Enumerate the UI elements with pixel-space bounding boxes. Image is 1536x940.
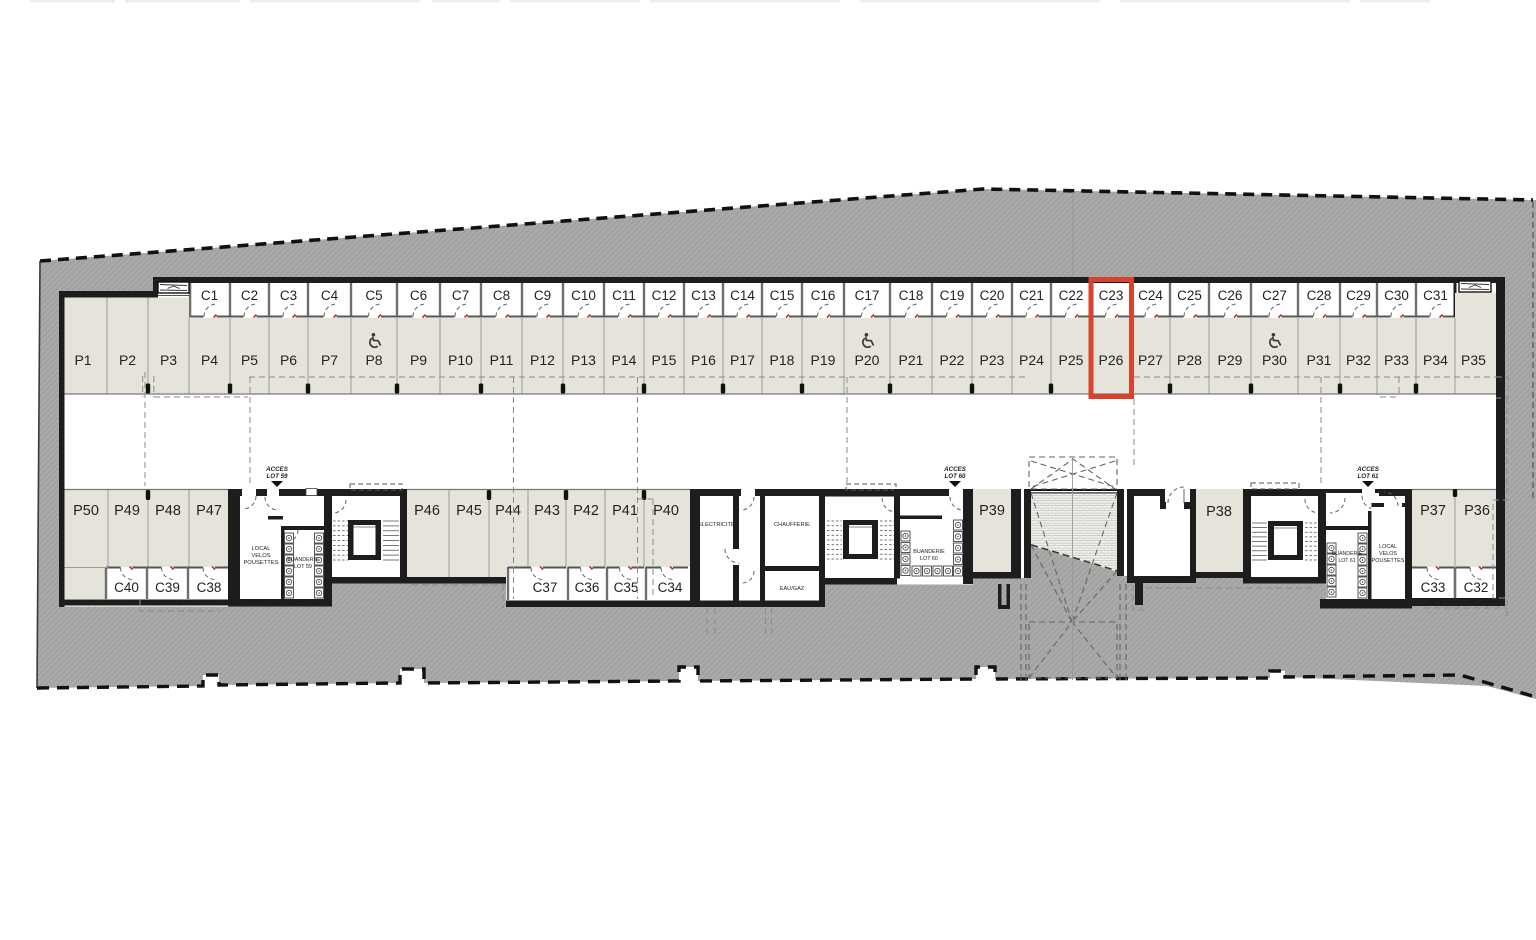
svg-text:C21: C21	[1019, 288, 1044, 303]
svg-text:LOT 59: LOT 59	[294, 564, 312, 570]
svg-text:C12: C12	[652, 288, 677, 303]
svg-text:C26: C26	[1218, 288, 1243, 303]
svg-text:C20: C20	[980, 288, 1005, 303]
svg-text:LOT 60: LOT 60	[945, 473, 967, 480]
svg-text:C28: C28	[1307, 288, 1332, 303]
svg-text:P5: P5	[241, 352, 258, 368]
svg-text:P6: P6	[280, 352, 297, 368]
svg-text:P32: P32	[1346, 352, 1371, 368]
svg-text:C15: C15	[770, 288, 795, 303]
svg-text:C8: C8	[493, 288, 510, 303]
svg-text:P28: P28	[1177, 352, 1202, 368]
svg-text:ELECTRICITE: ELECTRICITE	[698, 522, 735, 528]
svg-text:P9: P9	[410, 352, 427, 368]
svg-text:P7: P7	[321, 352, 338, 368]
svg-text:ACCES: ACCES	[265, 466, 289, 473]
svg-text:POUSETTES: POUSETTES	[243, 560, 278, 566]
svg-text:VELOS: VELOS	[1379, 551, 1397, 557]
svg-text:P47: P47	[196, 503, 222, 519]
svg-text:P21: P21	[899, 352, 924, 368]
svg-text:P4: P4	[201, 352, 218, 368]
svg-text:BUANDERIE: BUANDERIE	[287, 557, 319, 563]
svg-text:C24: C24	[1138, 288, 1163, 303]
svg-text:C11: C11	[612, 288, 636, 303]
svg-text:LOT 61: LOT 61	[1358, 473, 1380, 480]
svg-text:C9: C9	[534, 288, 551, 303]
svg-text:C7: C7	[452, 288, 469, 303]
svg-text:C18: C18	[899, 288, 924, 303]
svg-text:P18: P18	[770, 352, 795, 368]
svg-text:C35: C35	[614, 580, 639, 595]
svg-text:P50: P50	[73, 503, 99, 519]
svg-text:P31: P31	[1307, 352, 1332, 368]
svg-text:P43: P43	[534, 503, 560, 519]
svg-text:C33: C33	[1421, 580, 1446, 595]
svg-text:EAU/GAZ: EAU/GAZ	[780, 586, 805, 592]
svg-text:C37: C37	[533, 580, 558, 595]
svg-text:C40: C40	[114, 580, 139, 595]
svg-text:C10: C10	[571, 288, 596, 303]
svg-text:C39: C39	[155, 580, 180, 595]
svg-text:POUSETTES: POUSETTES	[1372, 558, 1405, 564]
svg-text:P40: P40	[653, 503, 679, 519]
svg-text:P39: P39	[979, 503, 1005, 519]
svg-text:C5: C5	[365, 288, 382, 303]
svg-text:P38: P38	[1206, 504, 1232, 520]
svg-text:C17: C17	[855, 288, 880, 303]
svg-text:ACCES: ACCES	[1356, 466, 1380, 473]
svg-text:C31: C31	[1423, 288, 1448, 303]
svg-text:C14: C14	[730, 288, 755, 303]
svg-text:LOCAL: LOCAL	[251, 546, 271, 552]
svg-text:P46: P46	[414, 503, 440, 519]
svg-text:P14: P14	[612, 352, 637, 368]
svg-text:P36: P36	[1464, 503, 1490, 519]
svg-text:P24: P24	[1019, 352, 1044, 368]
svg-text:C32: C32	[1464, 580, 1489, 595]
svg-text:CHAUFFERIE: CHAUFFERIE	[774, 522, 810, 528]
svg-text:P23: P23	[980, 352, 1005, 368]
svg-text:P41: P41	[612, 503, 638, 519]
svg-text:P16: P16	[691, 352, 716, 368]
svg-text:P45: P45	[456, 503, 482, 519]
svg-text:VELOS: VELOS	[251, 553, 270, 559]
svg-text:P42: P42	[573, 503, 599, 519]
svg-text:C23: C23	[1099, 288, 1124, 303]
svg-text:C3: C3	[280, 288, 297, 303]
svg-text:C34: C34	[658, 580, 683, 595]
svg-text:C6: C6	[410, 288, 427, 303]
svg-text:C30: C30	[1384, 288, 1409, 303]
svg-text:P1: P1	[74, 352, 91, 368]
svg-text:P19: P19	[811, 352, 836, 368]
svg-text:P27: P27	[1138, 352, 1163, 368]
svg-text:P44: P44	[495, 503, 521, 519]
svg-text:C16: C16	[811, 288, 836, 303]
svg-text:P33: P33	[1384, 352, 1409, 368]
svg-text:P37: P37	[1420, 503, 1446, 519]
svg-text:P10: P10	[448, 352, 473, 368]
svg-text:C36: C36	[575, 580, 600, 595]
svg-text:P22: P22	[940, 352, 965, 368]
svg-text:P49: P49	[114, 503, 140, 519]
svg-text:P20: P20	[855, 352, 880, 368]
svg-text:C27: C27	[1262, 288, 1287, 303]
svg-text:P15: P15	[652, 352, 677, 368]
svg-text:C25: C25	[1177, 288, 1202, 303]
svg-text:LOT 59: LOT 59	[267, 473, 289, 480]
svg-text:P25: P25	[1059, 352, 1084, 368]
svg-text:C29: C29	[1346, 288, 1371, 303]
svg-text:C38: C38	[197, 580, 222, 595]
svg-text:P2: P2	[119, 352, 136, 368]
svg-text:P13: P13	[571, 352, 596, 368]
svg-text:P17: P17	[730, 352, 755, 368]
svg-text:P48: P48	[155, 503, 181, 519]
svg-text:C22: C22	[1059, 288, 1084, 303]
svg-text:C2: C2	[241, 288, 258, 303]
svg-text:LOT 60: LOT 60	[920, 556, 938, 562]
svg-text:P29: P29	[1218, 352, 1243, 368]
svg-text:ACCES: ACCES	[943, 466, 967, 473]
svg-text:P35: P35	[1461, 352, 1486, 368]
svg-text:C1: C1	[201, 288, 218, 303]
svg-text:LOCAL: LOCAL	[1379, 544, 1397, 550]
svg-text:BUANDERIE: BUANDERIE	[1332, 551, 1363, 557]
svg-text:LOT 61: LOT 61	[1338, 558, 1355, 564]
svg-text:P3: P3	[160, 352, 177, 368]
svg-text:P26: P26	[1099, 352, 1124, 368]
svg-text:C4: C4	[321, 288, 339, 303]
svg-text:P11: P11	[490, 352, 514, 368]
svg-text:C13: C13	[691, 288, 716, 303]
svg-text:P8: P8	[365, 352, 382, 368]
svg-text:P30: P30	[1262, 352, 1287, 368]
svg-text:P34: P34	[1423, 352, 1448, 368]
svg-text:BUANDERIE: BUANDERIE	[913, 549, 945, 555]
svg-text:C19: C19	[940, 288, 965, 303]
svg-text:P12: P12	[530, 352, 555, 368]
